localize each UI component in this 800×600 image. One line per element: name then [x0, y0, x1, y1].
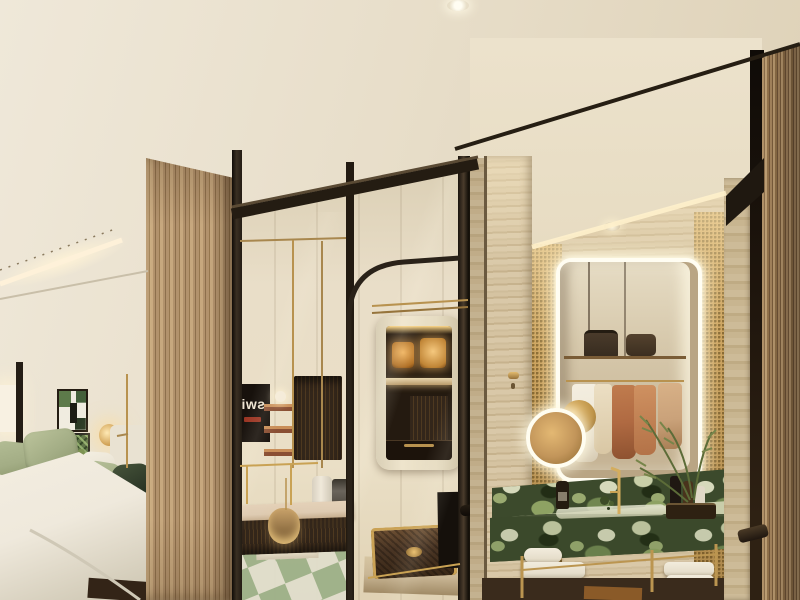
- reflection-bag-2: [626, 334, 656, 356]
- towel-stack-left-1: [521, 562, 585, 578]
- bathroom-recessed-light: [604, 222, 620, 231]
- bed-base: [87, 578, 152, 600]
- reflection-garment-rust-1: [612, 385, 636, 459]
- display-cabinet: [376, 316, 462, 470]
- ceiling-spotlight: [447, 0, 469, 11]
- wall-art-frame: [57, 389, 88, 432]
- amenity-bottle-dark: [556, 481, 569, 509]
- floor-mat: [584, 586, 642, 600]
- reflection-bag-1: [584, 330, 618, 359]
- display-item-lit-right: [420, 338, 446, 368]
- reflection-garment-rust-2: [634, 385, 656, 455]
- wall-shelf-3: [264, 449, 294, 456]
- display-item-lit-left: [392, 342, 414, 368]
- display-shelf-lighting: [386, 326, 452, 334]
- brand-sign-red-word: [244, 417, 261, 422]
- display-slatted-niche: [410, 396, 448, 440]
- magnifying-mirror: [526, 408, 586, 468]
- towel-stack-right-1: [664, 562, 714, 576]
- pillar-keyhole: [511, 383, 515, 389]
- display-drawer: [386, 440, 452, 460]
- amenity-tray-bottle-1: [670, 476, 681, 506]
- wall-shelf-1: [264, 404, 294, 411]
- reflection-robe-cream: [594, 384, 612, 454]
- display-shelf-divider: [386, 378, 452, 385]
- reflection-coat-tan: [658, 383, 682, 449]
- minibar-upper-cabinet: [294, 376, 342, 460]
- amenity-bottle-label: [558, 492, 567, 501]
- reflection-hang-rod: [566, 380, 684, 382]
- display-drawer-handle: [404, 444, 434, 447]
- reflection-wall-frame-lines: [560, 262, 690, 358]
- hotel-room-photo: swi: [0, 0, 800, 600]
- pendant-light: [268, 508, 300, 544]
- counter-plant-sprig: [600, 496, 609, 505]
- right-wood-pillar: [762, 44, 800, 600]
- pillar-door-handle: [508, 372, 519, 379]
- sphere-lamp: [275, 391, 286, 402]
- glass-frame-left: [232, 150, 242, 600]
- table-lamp-shade: [0, 385, 16, 432]
- oak-slat-pillar: [146, 154, 234, 600]
- right-door-gap: [750, 50, 764, 600]
- towel-roll-left: [524, 548, 562, 563]
- display-cabinet-interior: [386, 326, 452, 460]
- glass-frame-middle: [346, 162, 354, 600]
- reflection-shelf: [564, 356, 686, 359]
- amenity-tray: [666, 503, 716, 519]
- trunk-emblem: [406, 547, 423, 558]
- wall-shelf-2: [264, 426, 294, 433]
